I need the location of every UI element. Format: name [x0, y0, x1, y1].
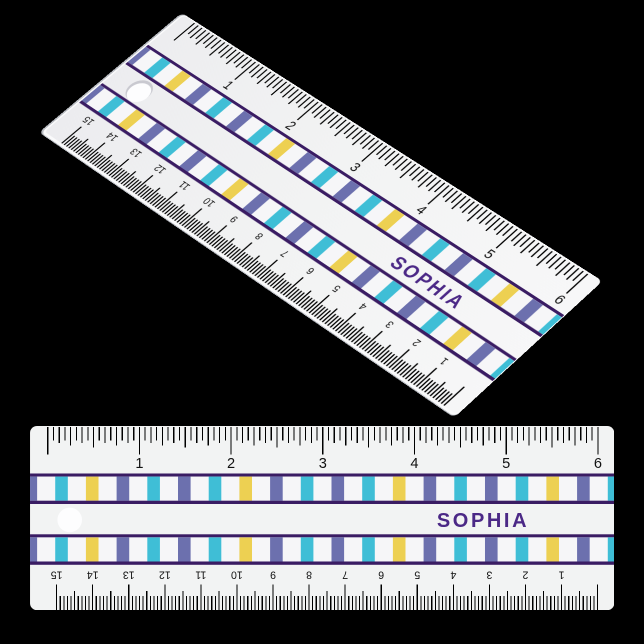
- svg-text:2: 2: [227, 456, 235, 472]
- svg-text:1: 1: [558, 569, 564, 581]
- svg-text:1: 1: [135, 456, 143, 472]
- svg-text:2: 2: [522, 569, 528, 581]
- svg-text:15: 15: [50, 569, 62, 581]
- svg-text:13: 13: [122, 569, 134, 581]
- svg-text:3: 3: [318, 456, 326, 472]
- svg-text:SOPHIA: SOPHIA: [436, 510, 528, 532]
- svg-text:10: 10: [230, 569, 242, 581]
- svg-text:3: 3: [486, 569, 492, 581]
- svg-text:8: 8: [306, 569, 312, 581]
- svg-text:4: 4: [450, 569, 456, 581]
- svg-text:5: 5: [414, 569, 420, 581]
- svg-text:6: 6: [378, 569, 384, 581]
- svg-text:4: 4: [410, 456, 418, 472]
- svg-text:5: 5: [502, 456, 510, 472]
- svg-text:6: 6: [593, 456, 601, 472]
- svg-text:9: 9: [269, 569, 275, 581]
- svg-text:7: 7: [342, 569, 348, 581]
- svg-text:12: 12: [158, 569, 170, 581]
- svg-text:11: 11: [195, 569, 206, 581]
- svg-text:14: 14: [86, 569, 98, 581]
